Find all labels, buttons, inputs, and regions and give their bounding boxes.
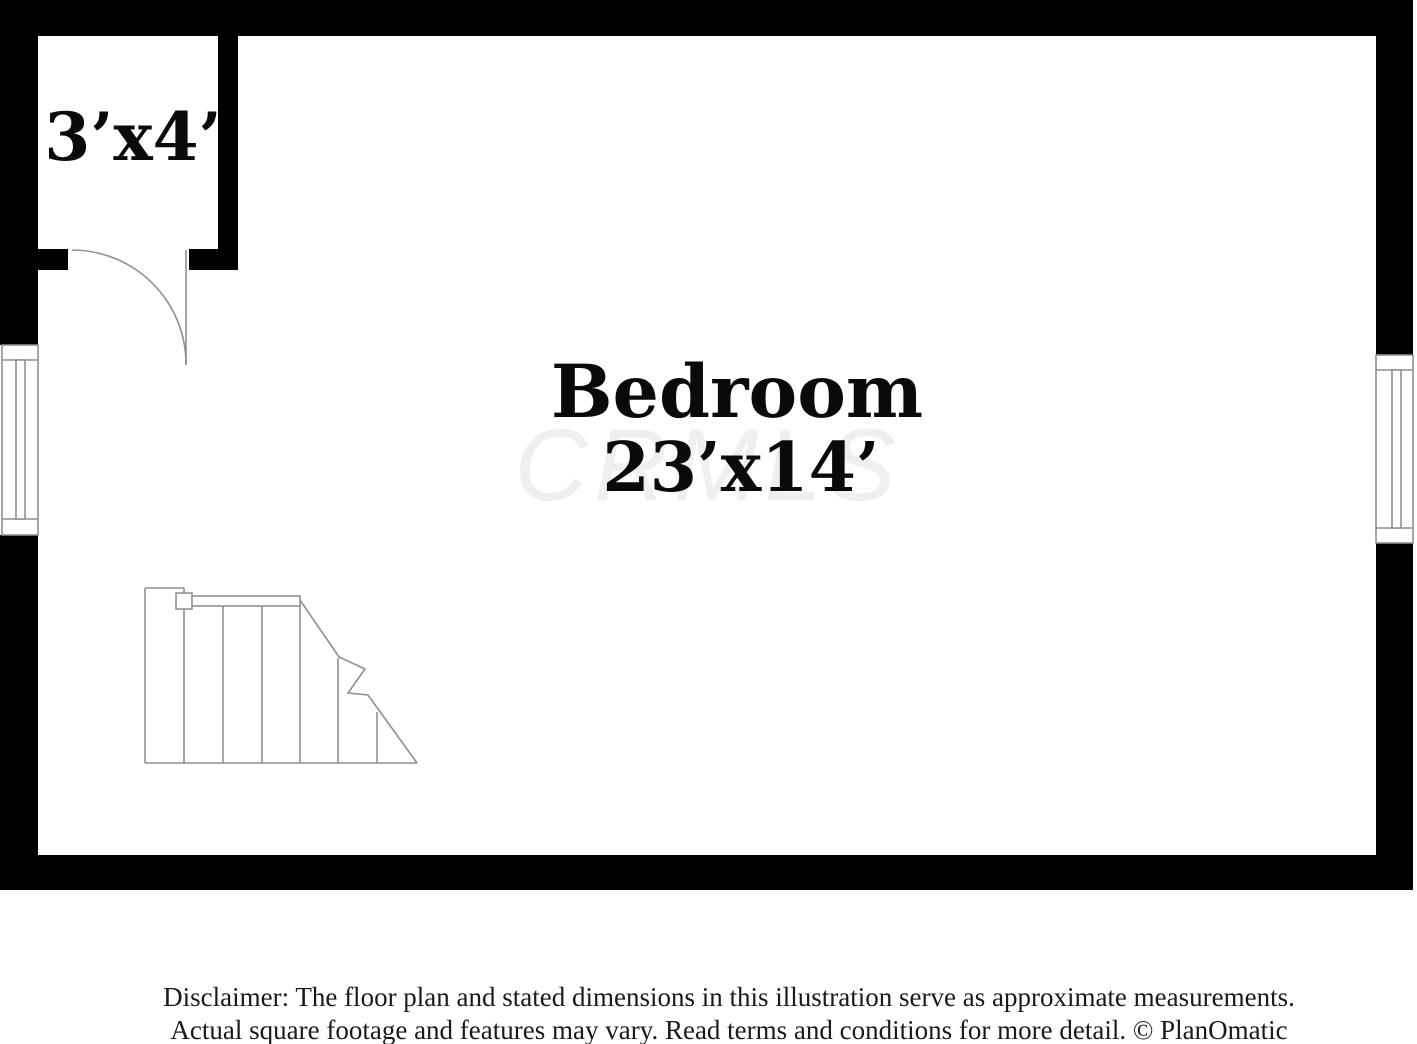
disclaimer-line-1: Disclaimer: The floor plan and stated di… (21, 981, 1417, 1014)
room-dimensions-label: 23’x14’ (602, 434, 879, 502)
disclaimer-line-2: Actual square footage and features may v… (21, 1014, 1417, 1044)
window-right-icon (1376, 355, 1413, 543)
room-name-label: Bedroom (551, 356, 923, 429)
window-left-icon (2, 345, 38, 535)
floor-plan: CRMLS 3’x4’ Bedroom 23’x14’ Disclaimer: … (0, 0, 1417, 1044)
disclaimer: Disclaimer: The floor plan and stated di… (21, 981, 1417, 1044)
closet-dimensions-label: 3’x4’ (44, 104, 221, 170)
stairs-icon (145, 588, 417, 763)
stair-break-line (300, 600, 417, 763)
door-swing-icon (72, 250, 186, 365)
stair-handrail (184, 596, 300, 606)
stair-newel-post (176, 593, 192, 609)
